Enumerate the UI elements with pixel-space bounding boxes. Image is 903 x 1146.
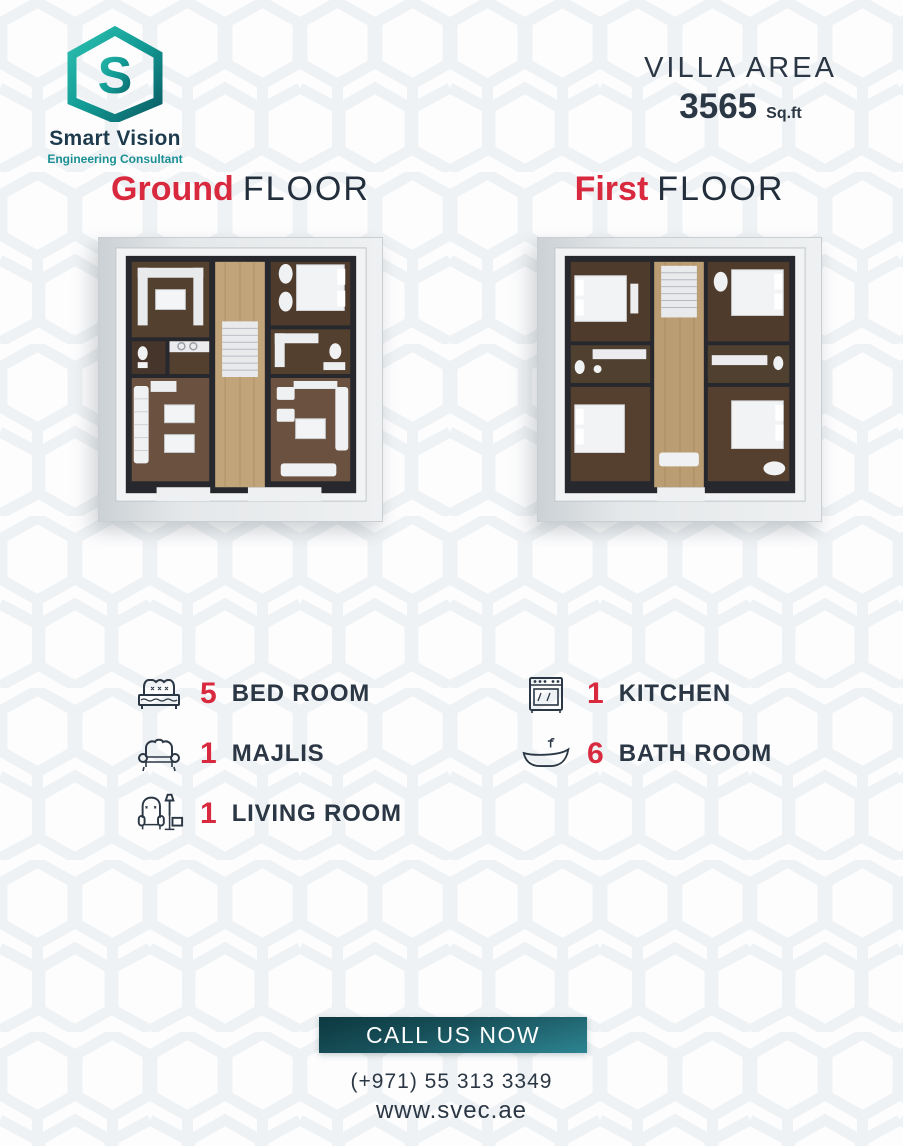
- villa-area-label: VILLA AREA: [618, 52, 863, 85]
- first-floor-plan-image: [537, 237, 822, 522]
- feature-livingroom-count: 1: [200, 797, 217, 831]
- call-us-now-label: CALL US NOW: [366, 1022, 540, 1049]
- ground-floor-title-rest: FLOOR: [243, 170, 370, 208]
- feature-kitchen-label: KITCHEN: [619, 680, 731, 708]
- first-floor-title-rest: FLOOR: [657, 170, 784, 208]
- villa-area-value: 3565: [679, 87, 757, 127]
- feature-kitchen-count: 1: [587, 677, 604, 711]
- feature-majlis-label: MAJLIS: [232, 740, 325, 768]
- sofa-icon: [133, 733, 185, 775]
- feature-bedroom-label: BED ROOM: [232, 680, 370, 708]
- feature-livingroom-label: LIVING ROOM: [232, 800, 402, 828]
- feature-majlis: 1 MAJLIS: [133, 732, 463, 776]
- ground-floor-plan-image: [98, 237, 383, 522]
- brand-tagline: Engineering Consultant: [30, 152, 200, 166]
- feature-kitchen: 1 KITCHEN: [520, 672, 850, 716]
- bathtub-icon: [520, 733, 572, 775]
- villa-area-unit: Sq.ft: [766, 105, 802, 123]
- website-link[interactable]: www.svec.ae: [0, 1097, 903, 1125]
- ground-floor-title: GroundFLOOR: [98, 170, 383, 209]
- first-floor-title-accent: First: [575, 170, 649, 208]
- call-us-now-button[interactable]: CALL US NOW: [319, 1017, 587, 1053]
- feature-livingroom: 1 LIVING ROOM: [133, 792, 463, 836]
- phone-number: (+971) 55 313 3349: [0, 1070, 903, 1094]
- smart-vision-logo-icon: S: [63, 26, 167, 122]
- brand-name: Smart Vision: [30, 127, 200, 151]
- armchair-icon: [133, 792, 185, 836]
- svg-text:S: S: [98, 47, 133, 105]
- first-floor-title: FirstFLOOR: [537, 170, 822, 209]
- ground-floor-title-accent: Ground: [111, 170, 234, 208]
- feature-bathroom: 6 BATH ROOM: [520, 732, 850, 776]
- features-left-column: 5 BED ROOM 1 MAJLIS: [133, 672, 463, 852]
- feature-bedroom-count: 5: [200, 677, 217, 711]
- bed-icon: [133, 673, 185, 715]
- brand-logo-block: S Smart Vision Engineering Consultant: [30, 26, 200, 166]
- villa-area-block: VILLA AREA 3565 Sq.ft: [618, 52, 863, 127]
- features-right-column: 1 KITCHEN 6 BATH ROOM: [520, 672, 850, 792]
- stove-icon: [520, 672, 572, 716]
- feature-bedroom: 5 BED ROOM: [133, 672, 463, 716]
- feature-bathroom-label: BATH ROOM: [619, 740, 772, 768]
- feature-majlis-count: 1: [200, 737, 217, 771]
- flyer-page: S Smart Vision Engineering Consultant VI…: [0, 0, 903, 1146]
- feature-bathroom-count: 6: [587, 737, 604, 771]
- contact-block: (+971) 55 313 3349 www.svec.ae: [0, 1070, 903, 1125]
